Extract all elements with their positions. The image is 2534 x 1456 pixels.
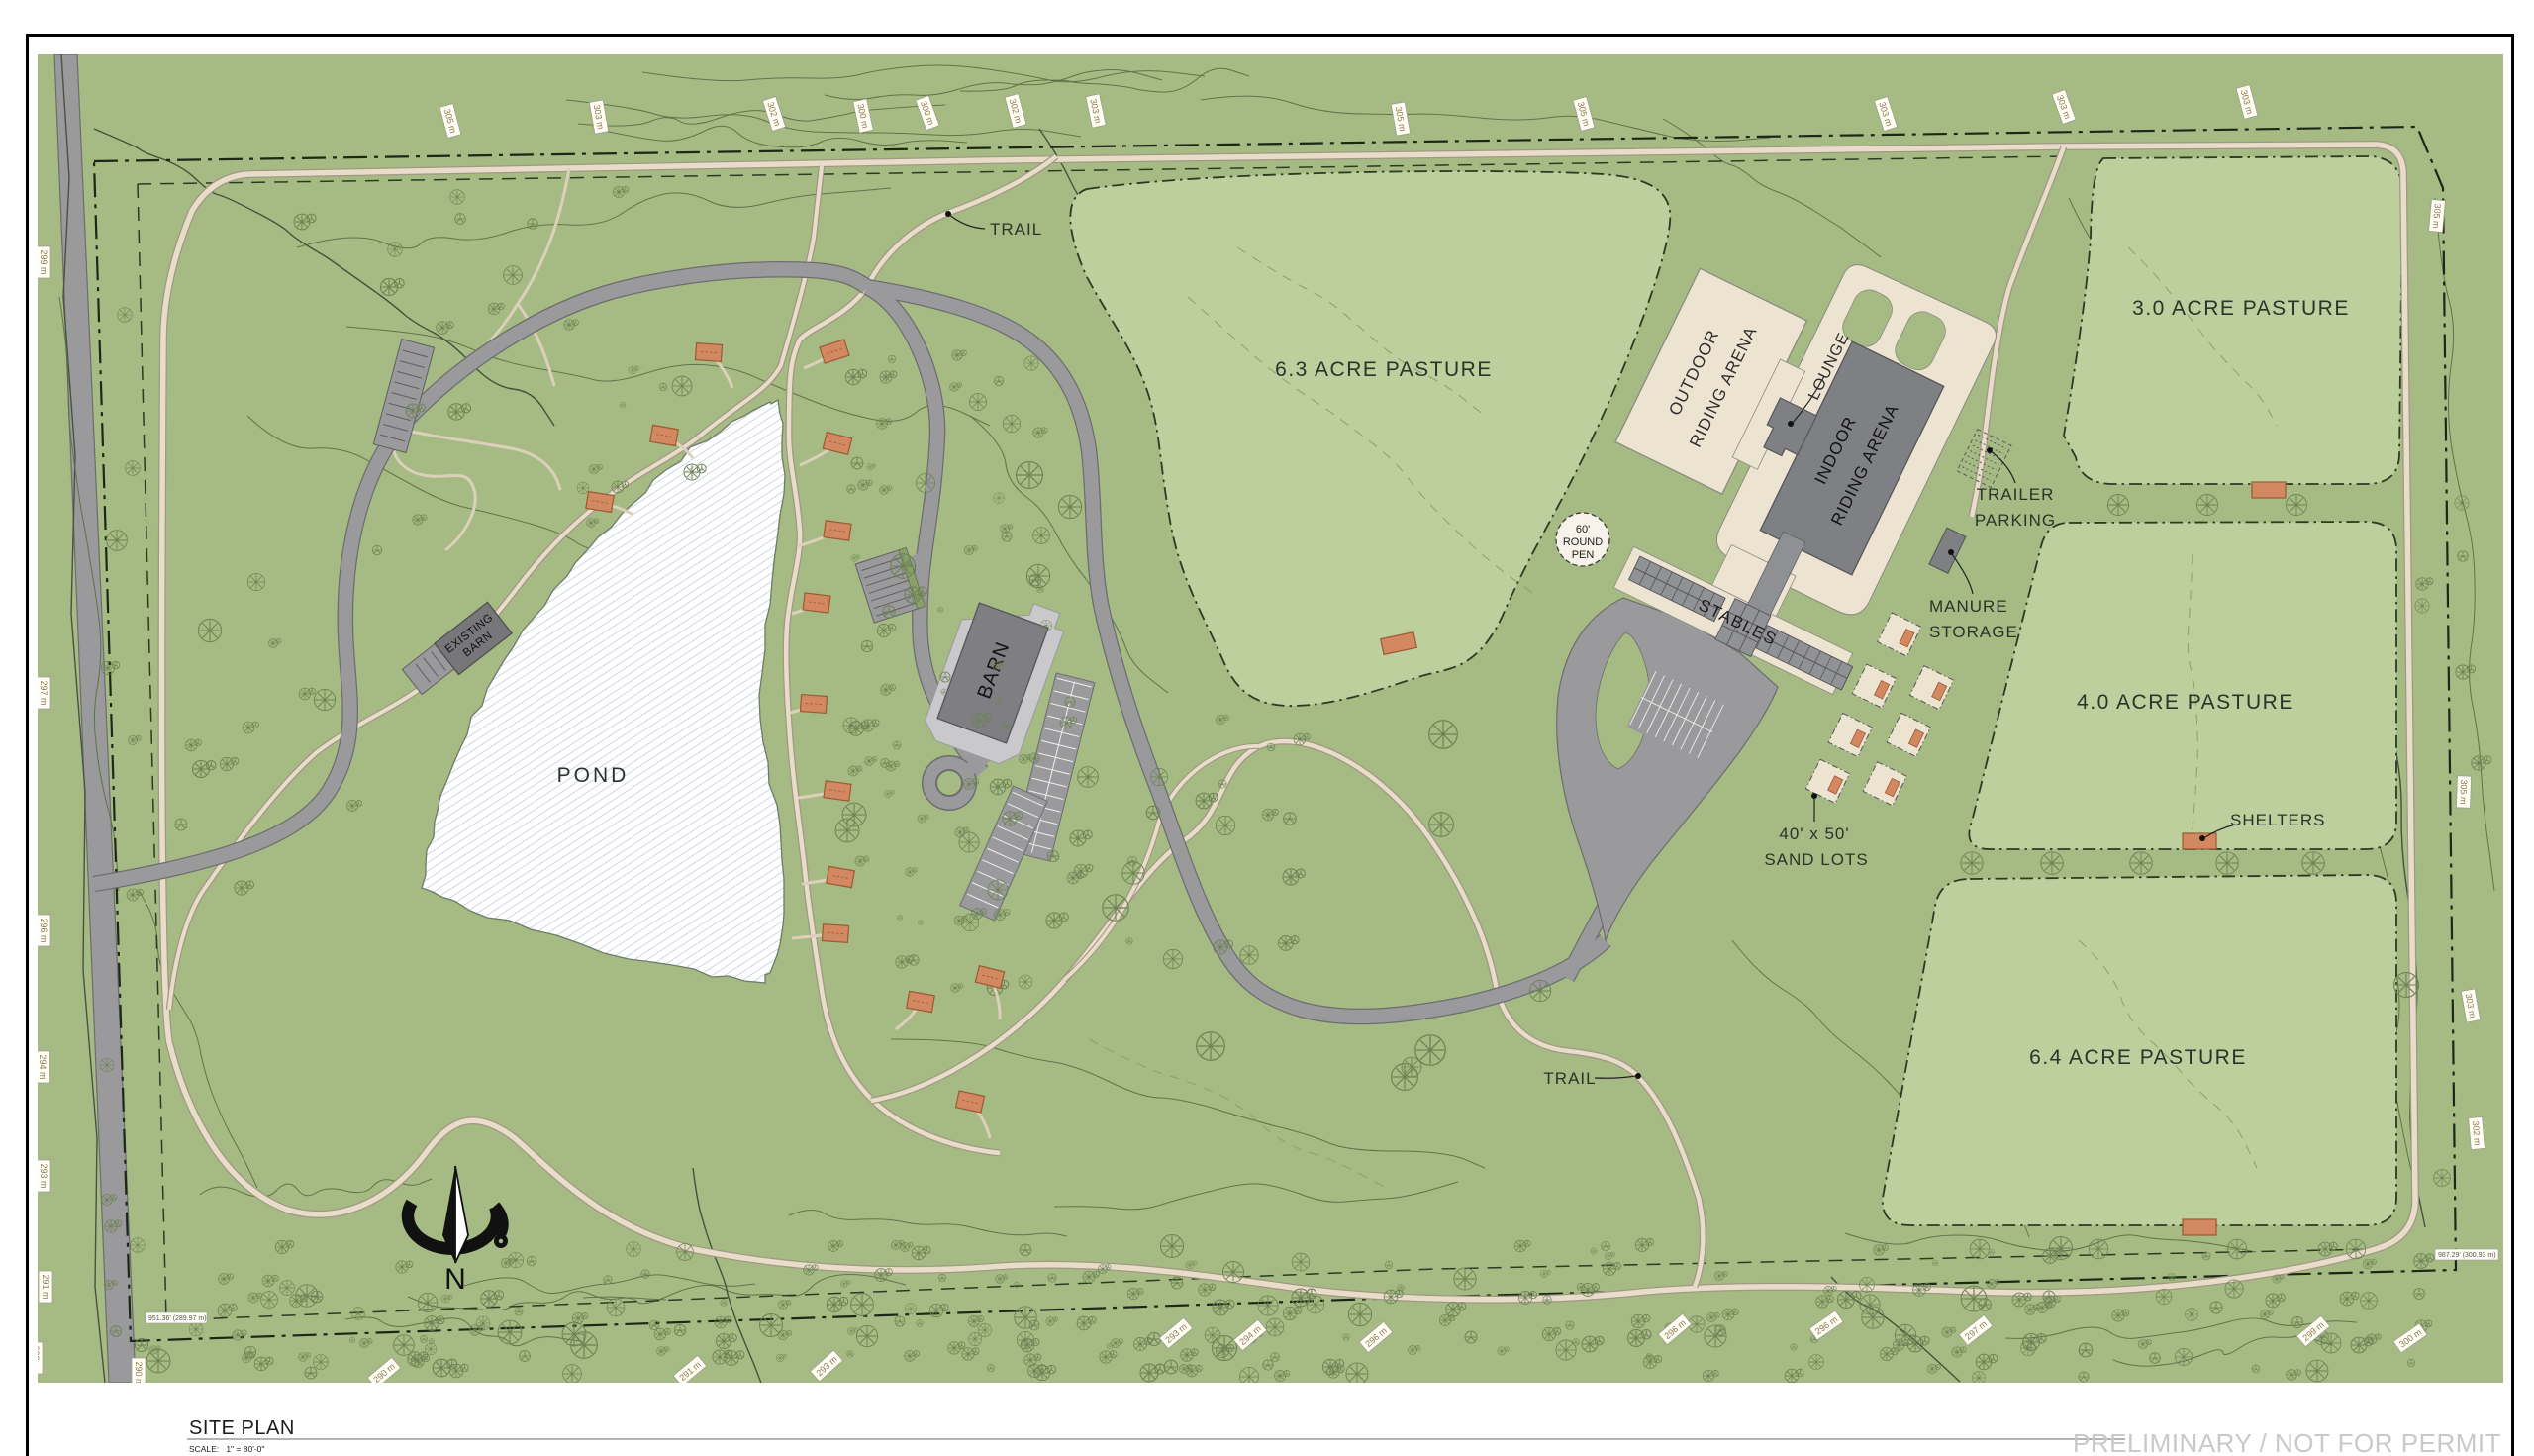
svg-text:987.29' (300.93 m): 987.29' (300.93 m) [2438,1252,2496,1259]
svg-text:PEN: PEN [1572,549,1595,561]
svg-text:3.0 ACRE PASTURE: 3.0 ACRE PASTURE [2132,297,2350,320]
svg-text:6.3 ACRE PASTURE: 6.3 ACRE PASTURE [1275,358,1493,381]
svg-text:296 m: 296 m [39,918,49,942]
svg-text:ROUND: ROUND [1563,536,1603,548]
svg-text:PRELIMINARY / NOT FOR PERMIT: PRELIMINARY / NOT FOR PERMIT [2073,1428,2501,1456]
svg-text:294 m: 294 m [38,1054,48,1079]
svg-text:SHELTERS: SHELTERS [2230,811,2326,829]
svg-text:4.0 ACRE PASTURE: 4.0 ACRE PASTURE [2077,691,2294,714]
svg-text:40' x 50': 40' x 50' [1779,825,1849,843]
svg-text:TRAIL: TRAIL [990,220,1042,239]
svg-text:60': 60' [1576,524,1590,535]
svg-text:305 m: 305 m [2458,779,2469,804]
svg-text:SAND LOTS: SAND LOTS [1764,850,1868,869]
svg-text:951.36' (289.97 m): 951.36' (289.97 m) [148,1315,207,1322]
svg-text:N: N [444,1263,466,1296]
svg-text:POND: POND [557,764,630,787]
svg-text:290 m: 290 m [134,1361,144,1386]
svg-text:MANURE: MANURE [1929,597,2008,616]
svg-text:TRAIL: TRAIL [1543,1069,1596,1088]
svg-text:SCALE: 1" = 80'-0": SCALE: 1" = 80'-0" [189,1444,264,1454]
svg-text:297 m: 297 m [39,680,49,705]
svg-text:PARKING: PARKING [1975,511,2056,530]
svg-text:293 m: 293 m [39,1163,49,1188]
svg-text:299 m: 299 m [39,249,49,274]
svg-text:STORAGE: STORAGE [1929,623,2018,641]
svg-text:6.4 ACRE PASTURE: 6.4 ACRE PASTURE [2029,1046,2247,1069]
svg-text:291 m: 291 m [41,1274,50,1299]
svg-text:TRAILER: TRAILER [1977,485,2055,504]
svg-text:SITE PLAN: SITE PLAN [189,1417,295,1439]
